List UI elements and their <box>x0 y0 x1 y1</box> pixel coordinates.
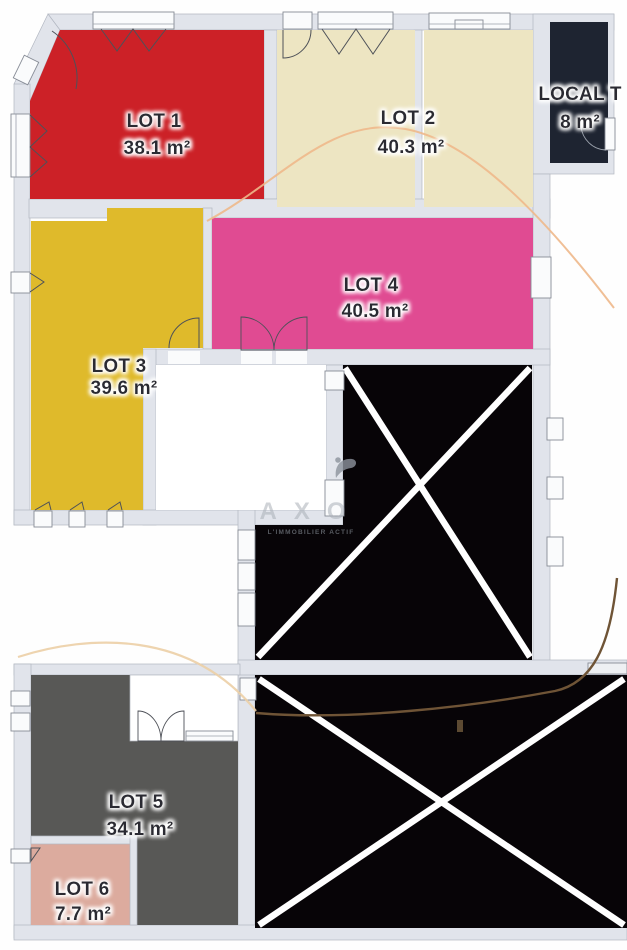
svg-text:AXO: AXO <box>259 498 362 525</box>
svg-text:LOT 1: LOT 1 <box>127 111 182 132</box>
svg-text:LOT 4: LOT 4 <box>344 275 399 296</box>
svg-text:LOT 3: LOT 3 <box>92 356 147 377</box>
svg-text:LOT 5: LOT 5 <box>109 792 164 813</box>
svg-text:8 m²: 8 m² <box>560 112 600 133</box>
svg-text:40.3 m²: 40.3 m² <box>378 137 445 158</box>
svg-text:L'IMMOBILIER ACTIF: L'IMMOBILIER ACTIF <box>268 529 355 536</box>
svg-text:40.5 m²: 40.5 m² <box>342 301 409 322</box>
svg-text:38.1 m²: 38.1 m² <box>124 138 191 159</box>
svg-text:34.1 m²: 34.1 m² <box>107 819 174 840</box>
svg-text:LOT 6: LOT 6 <box>55 879 110 900</box>
svg-text:7.7 m²: 7.7 m² <box>55 904 111 925</box>
svg-text:LOT 2: LOT 2 <box>381 108 436 129</box>
svg-text:LOCAL T: LOCAL T <box>538 84 622 105</box>
svg-text:39.6 m²: 39.6 m² <box>91 378 158 399</box>
